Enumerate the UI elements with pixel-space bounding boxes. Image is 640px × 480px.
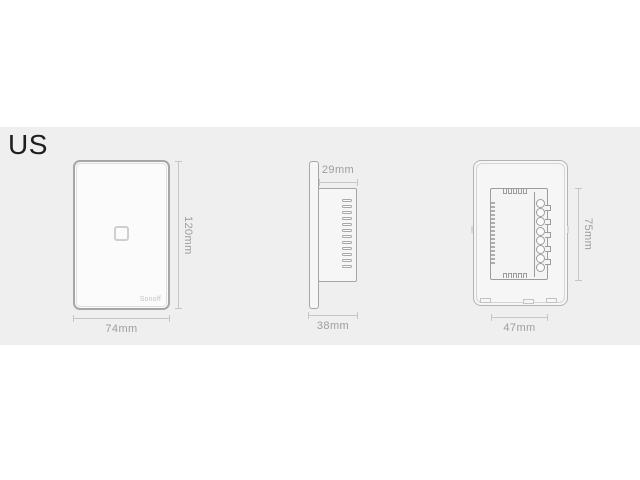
- vent-slot-icon: [342, 205, 352, 208]
- module-terminal-divider: [534, 192, 535, 277]
- module-left-teeth: [491, 202, 495, 268]
- terminal-screw-icon: [536, 236, 545, 245]
- region-label: US: [8, 130, 48, 160]
- side-vent-slots: [342, 199, 352, 271]
- heatsink-tooth-icon: [491, 202, 495, 204]
- plate-bottom-notch-center: [523, 299, 534, 304]
- heatsink-tooth-icon: [491, 218, 495, 220]
- terminal-screw-icon: [536, 245, 545, 254]
- plate-bottom-tab-right: [546, 298, 557, 303]
- side-total-depth-label: 38mm: [308, 320, 358, 332]
- edge-notch-icon: [545, 205, 551, 211]
- comb-tooth-icon: [518, 273, 522, 278]
- heatsink-tooth-icon: [491, 222, 495, 224]
- vent-slot-icon: [342, 199, 352, 202]
- comb-tooth-icon: [518, 189, 522, 194]
- touch-button-icon: [114, 226, 129, 241]
- front-height-dimension-label: 120mm: [181, 161, 195, 309]
- vent-slot-icon: [342, 265, 352, 268]
- comb-tooth-icon: [513, 189, 517, 194]
- side-total-depth-line: [308, 315, 358, 316]
- terminal-screw-icon: [536, 254, 545, 263]
- heatsink-tooth-icon: [491, 258, 495, 260]
- comb-tooth-icon: [523, 273, 527, 278]
- heatsink-tooth-icon: [491, 206, 495, 208]
- plate-bottom-tab-left: [480, 298, 491, 303]
- vent-slot-icon: [342, 241, 352, 244]
- heatsink-tooth-icon: [491, 262, 495, 264]
- back-height-dimension-line: [578, 188, 579, 281]
- edge-notch-icon: [545, 246, 551, 252]
- heatsink-tooth-icon: [491, 242, 495, 244]
- front-height-dimension-line: [178, 161, 179, 309]
- product-dimension-diagram: US Sonoff 120mm 74mm 29mm 38mm 75mm 47mm: [0, 0, 640, 480]
- heatsink-tooth-icon: [491, 214, 495, 216]
- edge-notch-icon: [545, 219, 551, 225]
- vent-slot-icon: [342, 259, 352, 262]
- terminal-screw-icon: [536, 199, 545, 208]
- vent-slot-icon: [342, 229, 352, 232]
- vent-slot-icon: [342, 223, 352, 226]
- terminal-screw-icon: [536, 263, 545, 272]
- edge-notch-icon: [545, 259, 551, 265]
- plate-side-ear-left: [471, 226, 473, 233]
- terminal-screw-column: [536, 199, 545, 273]
- terminal-screw-icon: [536, 217, 545, 226]
- heatsink-tooth-icon: [491, 230, 495, 232]
- back-width-dimension-label: 47mm: [491, 322, 548, 334]
- heatsink-tooth-icon: [491, 226, 495, 228]
- terminal-screw-icon: [536, 208, 545, 217]
- vent-slot-icon: [342, 247, 352, 250]
- back-width-dimension-line: [491, 317, 548, 318]
- comb-tooth-icon: [523, 189, 527, 194]
- comb-tooth-icon: [508, 273, 512, 278]
- terminal-screw-icon: [536, 227, 545, 236]
- front-width-dimension-label: 74mm: [73, 323, 170, 335]
- front-view-panel: Sonoff: [73, 160, 170, 310]
- comb-tooth-icon: [508, 189, 512, 194]
- comb-tooth-icon: [503, 273, 507, 278]
- heatsink-tooth-icon: [491, 238, 495, 240]
- vent-slot-icon: [342, 211, 352, 214]
- plate-side-ear-right: [567, 226, 569, 233]
- edge-notch-icon: [545, 232, 551, 238]
- side-body-depth-line: [319, 182, 358, 183]
- heatsink-tooth-icon: [491, 246, 495, 248]
- brand-logo: Sonoff: [140, 296, 161, 303]
- heatsink-tooth-icon: [491, 234, 495, 236]
- heatsink-tooth-icon: [491, 210, 495, 212]
- vent-slot-icon: [342, 217, 352, 220]
- module-right-notches: [545, 205, 551, 265]
- comb-tooth-icon: [513, 273, 517, 278]
- front-width-dimension-line: [73, 318, 170, 319]
- comb-tooth-icon: [503, 189, 507, 194]
- side-body-depth-label: 29mm: [318, 164, 358, 176]
- vent-slot-icon: [342, 235, 352, 238]
- back-height-dimension-label: 75mm: [581, 188, 595, 281]
- heatsink-tooth-icon: [491, 254, 495, 256]
- heatsink-tooth-icon: [491, 250, 495, 252]
- vent-slot-icon: [342, 253, 352, 256]
